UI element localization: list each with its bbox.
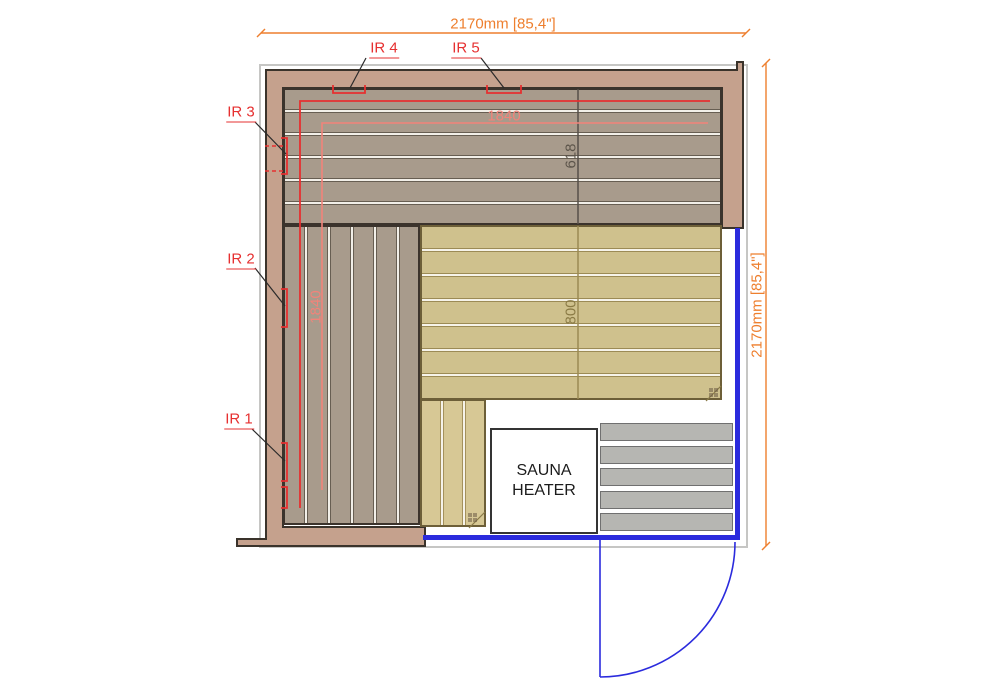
- tick: [762, 542, 770, 550]
- side-bench-depth-label: 800: [563, 299, 580, 324]
- grate-slat: [600, 446, 733, 464]
- ir-zone-width-label: 1840: [487, 108, 520, 125]
- tick: [742, 29, 750, 37]
- sauna-heater-label: SAUNA HEATER: [492, 461, 596, 501]
- grate-slat: [600, 423, 733, 441]
- tick: [257, 29, 265, 37]
- ir1-label: IR 1: [224, 411, 254, 430]
- ir2-label: IR 2: [226, 251, 256, 270]
- ir3-label: IR 3: [226, 104, 256, 123]
- grate-slat: [600, 513, 733, 531]
- glass-wall-right: [735, 228, 740, 538]
- ir4-label: IR 4: [369, 40, 399, 59]
- ir-zone-height-label: 1840: [308, 290, 325, 323]
- sauna-floor-plan: SAUNA HEATER: [0, 0, 991, 700]
- grate-slat: [600, 468, 733, 486]
- tick: [762, 59, 770, 67]
- sauna-heater-box: SAUNA HEATER: [490, 428, 598, 534]
- ir5-label: IR 5: [451, 40, 481, 59]
- door-swing-arc: [600, 542, 735, 677]
- dimension-top-label: 2170mm [85,4"]: [450, 16, 555, 33]
- glass-wall-bottom: [423, 535, 740, 540]
- left-bench: [283, 225, 420, 525]
- top-bench-depth-label: 618: [563, 143, 580, 168]
- dimension-right-label: 2170mm [85,4"]: [749, 252, 766, 357]
- floor-grate: [600, 423, 733, 531]
- grate-slat: [600, 491, 733, 509]
- step-bench: [420, 399, 486, 527]
